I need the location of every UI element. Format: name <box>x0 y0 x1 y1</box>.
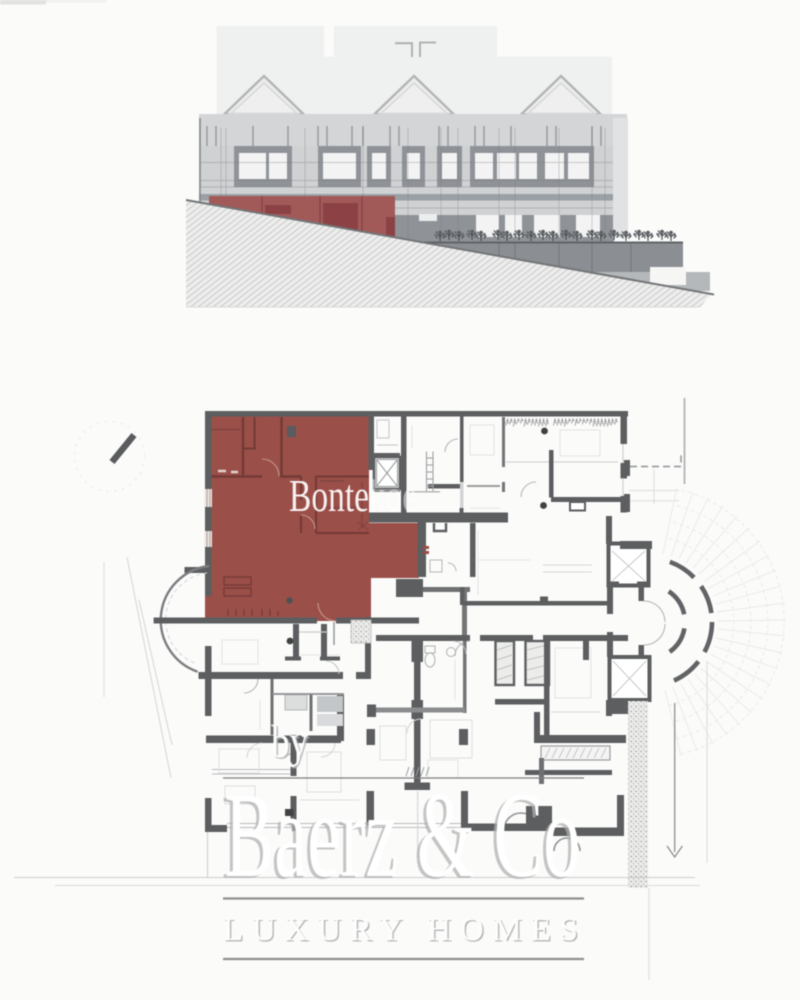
svg-text:by: by <box>271 716 308 768</box>
svg-text:koe: koe <box>369 470 417 521</box>
svg-text:Baerz & Co: Baerz & Co <box>225 768 581 903</box>
svg-text:Bonte: Bonte <box>289 470 369 521</box>
